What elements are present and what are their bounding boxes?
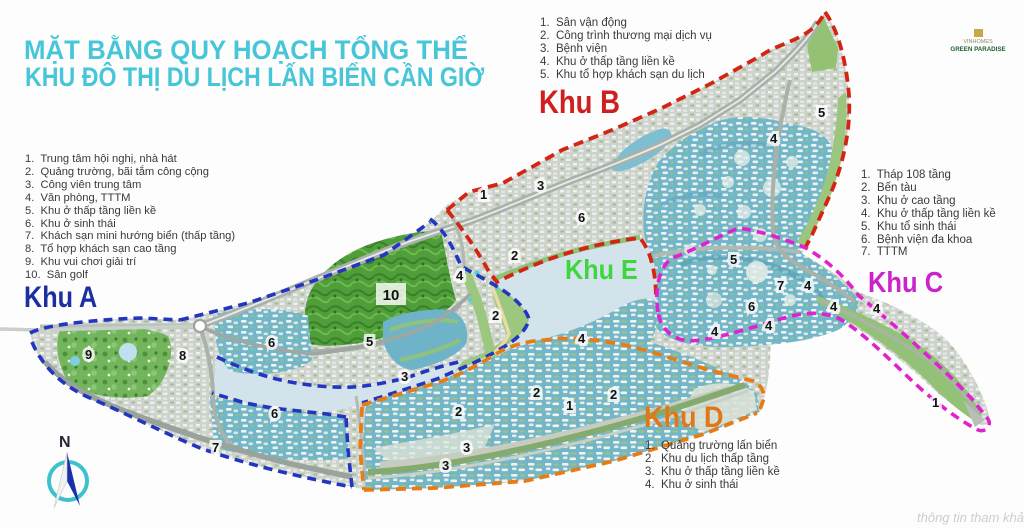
svg-text:4: 4 — [578, 331, 586, 346]
svg-text:6: 6 — [271, 406, 278, 421]
svg-text:6: 6 — [268, 335, 275, 350]
svg-text:5: 5 — [730, 252, 737, 267]
svg-text:5: 5 — [366, 334, 373, 349]
svg-text:2: 2 — [511, 248, 518, 263]
svg-text:1: 1 — [932, 395, 939, 410]
svg-text:3: 3 — [442, 458, 449, 473]
svg-text:GREEN PARADISE: GREEN PARADISE — [950, 46, 1005, 53]
svg-text:4: 4 — [711, 324, 719, 339]
svg-text:4: 4 — [770, 131, 778, 146]
svg-text:8: 8 — [179, 348, 186, 363]
svg-text:4: 4 — [873, 301, 881, 316]
svg-text:4: 4 — [456, 268, 464, 283]
svg-text:4: 4 — [765, 318, 773, 333]
svg-text:4: 4 — [830, 299, 838, 314]
svg-text:7: 7 — [777, 278, 784, 293]
svg-text:N: N — [59, 434, 71, 451]
svg-text:VINHOMES: VINHOMES — [963, 39, 993, 45]
svg-text:thông tin tham khảo: thông tin tham khảo — [917, 510, 1024, 525]
svg-text:2: 2 — [492, 308, 499, 323]
svg-text:6: 6 — [748, 299, 755, 314]
svg-text:2: 2 — [610, 387, 617, 402]
svg-text:2: 2 — [455, 404, 462, 419]
svg-text:1: 1 — [566, 398, 573, 413]
svg-text:10: 10 — [383, 287, 400, 304]
svg-text:3: 3 — [463, 440, 470, 455]
svg-text:9: 9 — [85, 347, 92, 362]
svg-text:6: 6 — [578, 210, 585, 225]
svg-text:3: 3 — [537, 178, 544, 193]
svg-text:3: 3 — [401, 369, 408, 384]
svg-text:4: 4 — [804, 278, 812, 293]
svg-text:7: 7 — [212, 440, 219, 455]
svg-text:2: 2 — [533, 385, 540, 400]
svg-text:1: 1 — [480, 187, 487, 202]
svg-text:5: 5 — [818, 105, 825, 120]
